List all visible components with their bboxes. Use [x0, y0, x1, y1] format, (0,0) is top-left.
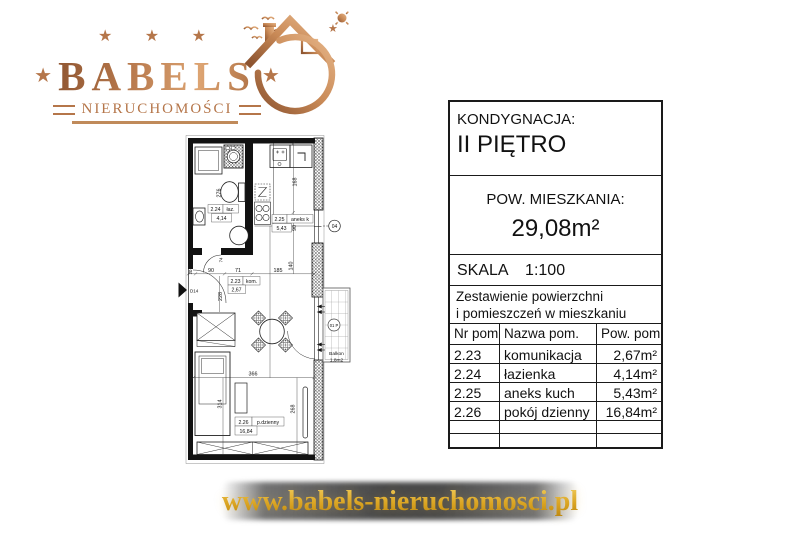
- table-empty-row: [450, 434, 661, 447]
- balcony-area: 1,8m2: [330, 358, 344, 364]
- side-table: [235, 383, 247, 413]
- svg-text:4,14: 4,14: [216, 216, 226, 222]
- hatched-walls: [312, 138, 323, 460]
- balcony-label: Balkon: [329, 351, 344, 357]
- balcony-badge: 01 P: [330, 323, 339, 328]
- double-line-decoration: [53, 105, 75, 115]
- col-header-pow: Pow. pom.: [596, 324, 661, 344]
- sun-icon: [333, 9, 351, 27]
- svg-text:2,67: 2,67: [231, 288, 241, 294]
- skala-row: SKALA 1:100: [450, 255, 661, 286]
- kondygnacja-value: II PIĘTRO: [457, 131, 661, 159]
- toilet: [221, 182, 239, 203]
- entrance-arrow-icon: [179, 283, 188, 298]
- table-row: 2.23 komunikacja 2,67m²: [450, 345, 661, 364]
- crescent-icon: [258, 37, 332, 111]
- svg-text:140: 140: [289, 262, 295, 271]
- toilet-tank: [239, 183, 246, 202]
- balcony: 01 P Balkon 1,8m2: [318, 288, 351, 364]
- logo-stars-icon: ★ ★ ★: [98, 26, 218, 46]
- svg-text:5,43: 5,43: [276, 226, 286, 232]
- logo-underline: [72, 121, 238, 124]
- table-empty-row: [450, 421, 661, 434]
- kitchen-fixtures: [255, 144, 315, 227]
- svg-text:168: 168: [293, 178, 299, 187]
- hob: [255, 202, 271, 225]
- table-header-row: Nr pom. Nazwa pom. Pow. pom.: [450, 324, 661, 345]
- dining-set: [251, 311, 292, 352]
- col-header-nazwa: Nazwa pom.: [499, 324, 596, 344]
- svg-text:90: 90: [208, 268, 214, 274]
- svg-text:185: 185: [274, 268, 283, 274]
- svg-text:04: 04: [332, 224, 338, 230]
- brand-logo: ★ ★ ★ ★ BABELS ★ NIERUCHOMOŚCI ★: [10, 2, 350, 128]
- living-label: 2.26 p.dzienny 16,84: [235, 417, 284, 435]
- skala-label: SKALA: [457, 262, 509, 279]
- hall-label: 2.23 kom. 2,67: [228, 277, 260, 294]
- entrance-label: D14: [190, 289, 199, 294]
- svg-text:20: 20: [188, 269, 193, 274]
- washbasin: [230, 226, 249, 245]
- star-icon: ★: [34, 66, 52, 86]
- table-row: 2.25 aneks kuch 5,43m²: [450, 383, 661, 402]
- svg-text:2.23: 2.23: [230, 279, 240, 285]
- svg-text:276: 276: [217, 189, 223, 198]
- brand-name: BABELS: [52, 52, 262, 100]
- svg-text:kom.: kom.: [246, 279, 257, 285]
- pow-mieszkania-value: 29,08m²: [450, 215, 661, 243]
- svg-text:16,84: 16,84: [240, 429, 253, 435]
- svg-text:366: 366: [249, 372, 258, 378]
- svg-text:2.26: 2.26: [238, 420, 248, 426]
- svg-text:228: 228: [218, 292, 224, 301]
- wardrobe: [197, 313, 235, 347]
- skala-value: 1:100: [525, 262, 565, 279]
- svg-text:268: 268: [291, 405, 297, 414]
- floorplan-drawing: 01 P Balkon 1,8m2 04: [175, 125, 375, 475]
- round-table: [260, 319, 285, 344]
- brand-subtitle: NIERUCHOMOŚCI: [81, 101, 232, 118]
- website-url: www.babels-nieruchomosci.pl: [0, 486, 800, 518]
- kitchen-window: [314, 210, 323, 243]
- rooms-table: Nr pom. Nazwa pom. Pow. pom. 2.23 komuni…: [450, 324, 661, 447]
- table-row: 2.24 łazienka 4,14m²: [450, 364, 661, 383]
- kondygnacja-label: KONDYGNACJA:: [457, 111, 661, 128]
- zestawienie-line2: i pomieszczeń w mieszkaniu: [456, 305, 661, 322]
- svg-text:74: 74: [219, 257, 224, 262]
- zestawienie-line1: Zestawienie powierzchni: [456, 288, 661, 305]
- house-roof-icon: [238, 4, 352, 122]
- svg-text:90: 90: [292, 225, 298, 231]
- table-row: 2.26 pokój dzienny 16,84m²: [450, 402, 661, 421]
- svg-text:71: 71: [235, 268, 241, 274]
- bathroom-label: 2.24 łaz. 4,14: [208, 205, 239, 223]
- bed: [195, 352, 230, 436]
- svg-text:2.25: 2.25: [274, 217, 284, 223]
- svg-text:łaz.: łaz.: [226, 207, 234, 213]
- svg-text:2.24: 2.24: [210, 207, 220, 213]
- svg-text:aneks k: aneks k: [291, 217, 309, 223]
- radiator: [303, 387, 308, 438]
- info-panel: KONDYGNACJA: II PIĘTRO POW. MIESZKANIA: …: [448, 100, 663, 449]
- pow-mieszkania-label: POW. MIESZKANIA:: [450, 191, 661, 208]
- svg-text:p.dzienny: p.dzienny: [257, 420, 280, 426]
- svg-text:314: 314: [218, 400, 224, 409]
- window-badge: 04: [323, 220, 340, 232]
- bottom-wardrobe: [197, 442, 308, 455]
- col-header-nr: Nr pom.: [450, 324, 499, 344]
